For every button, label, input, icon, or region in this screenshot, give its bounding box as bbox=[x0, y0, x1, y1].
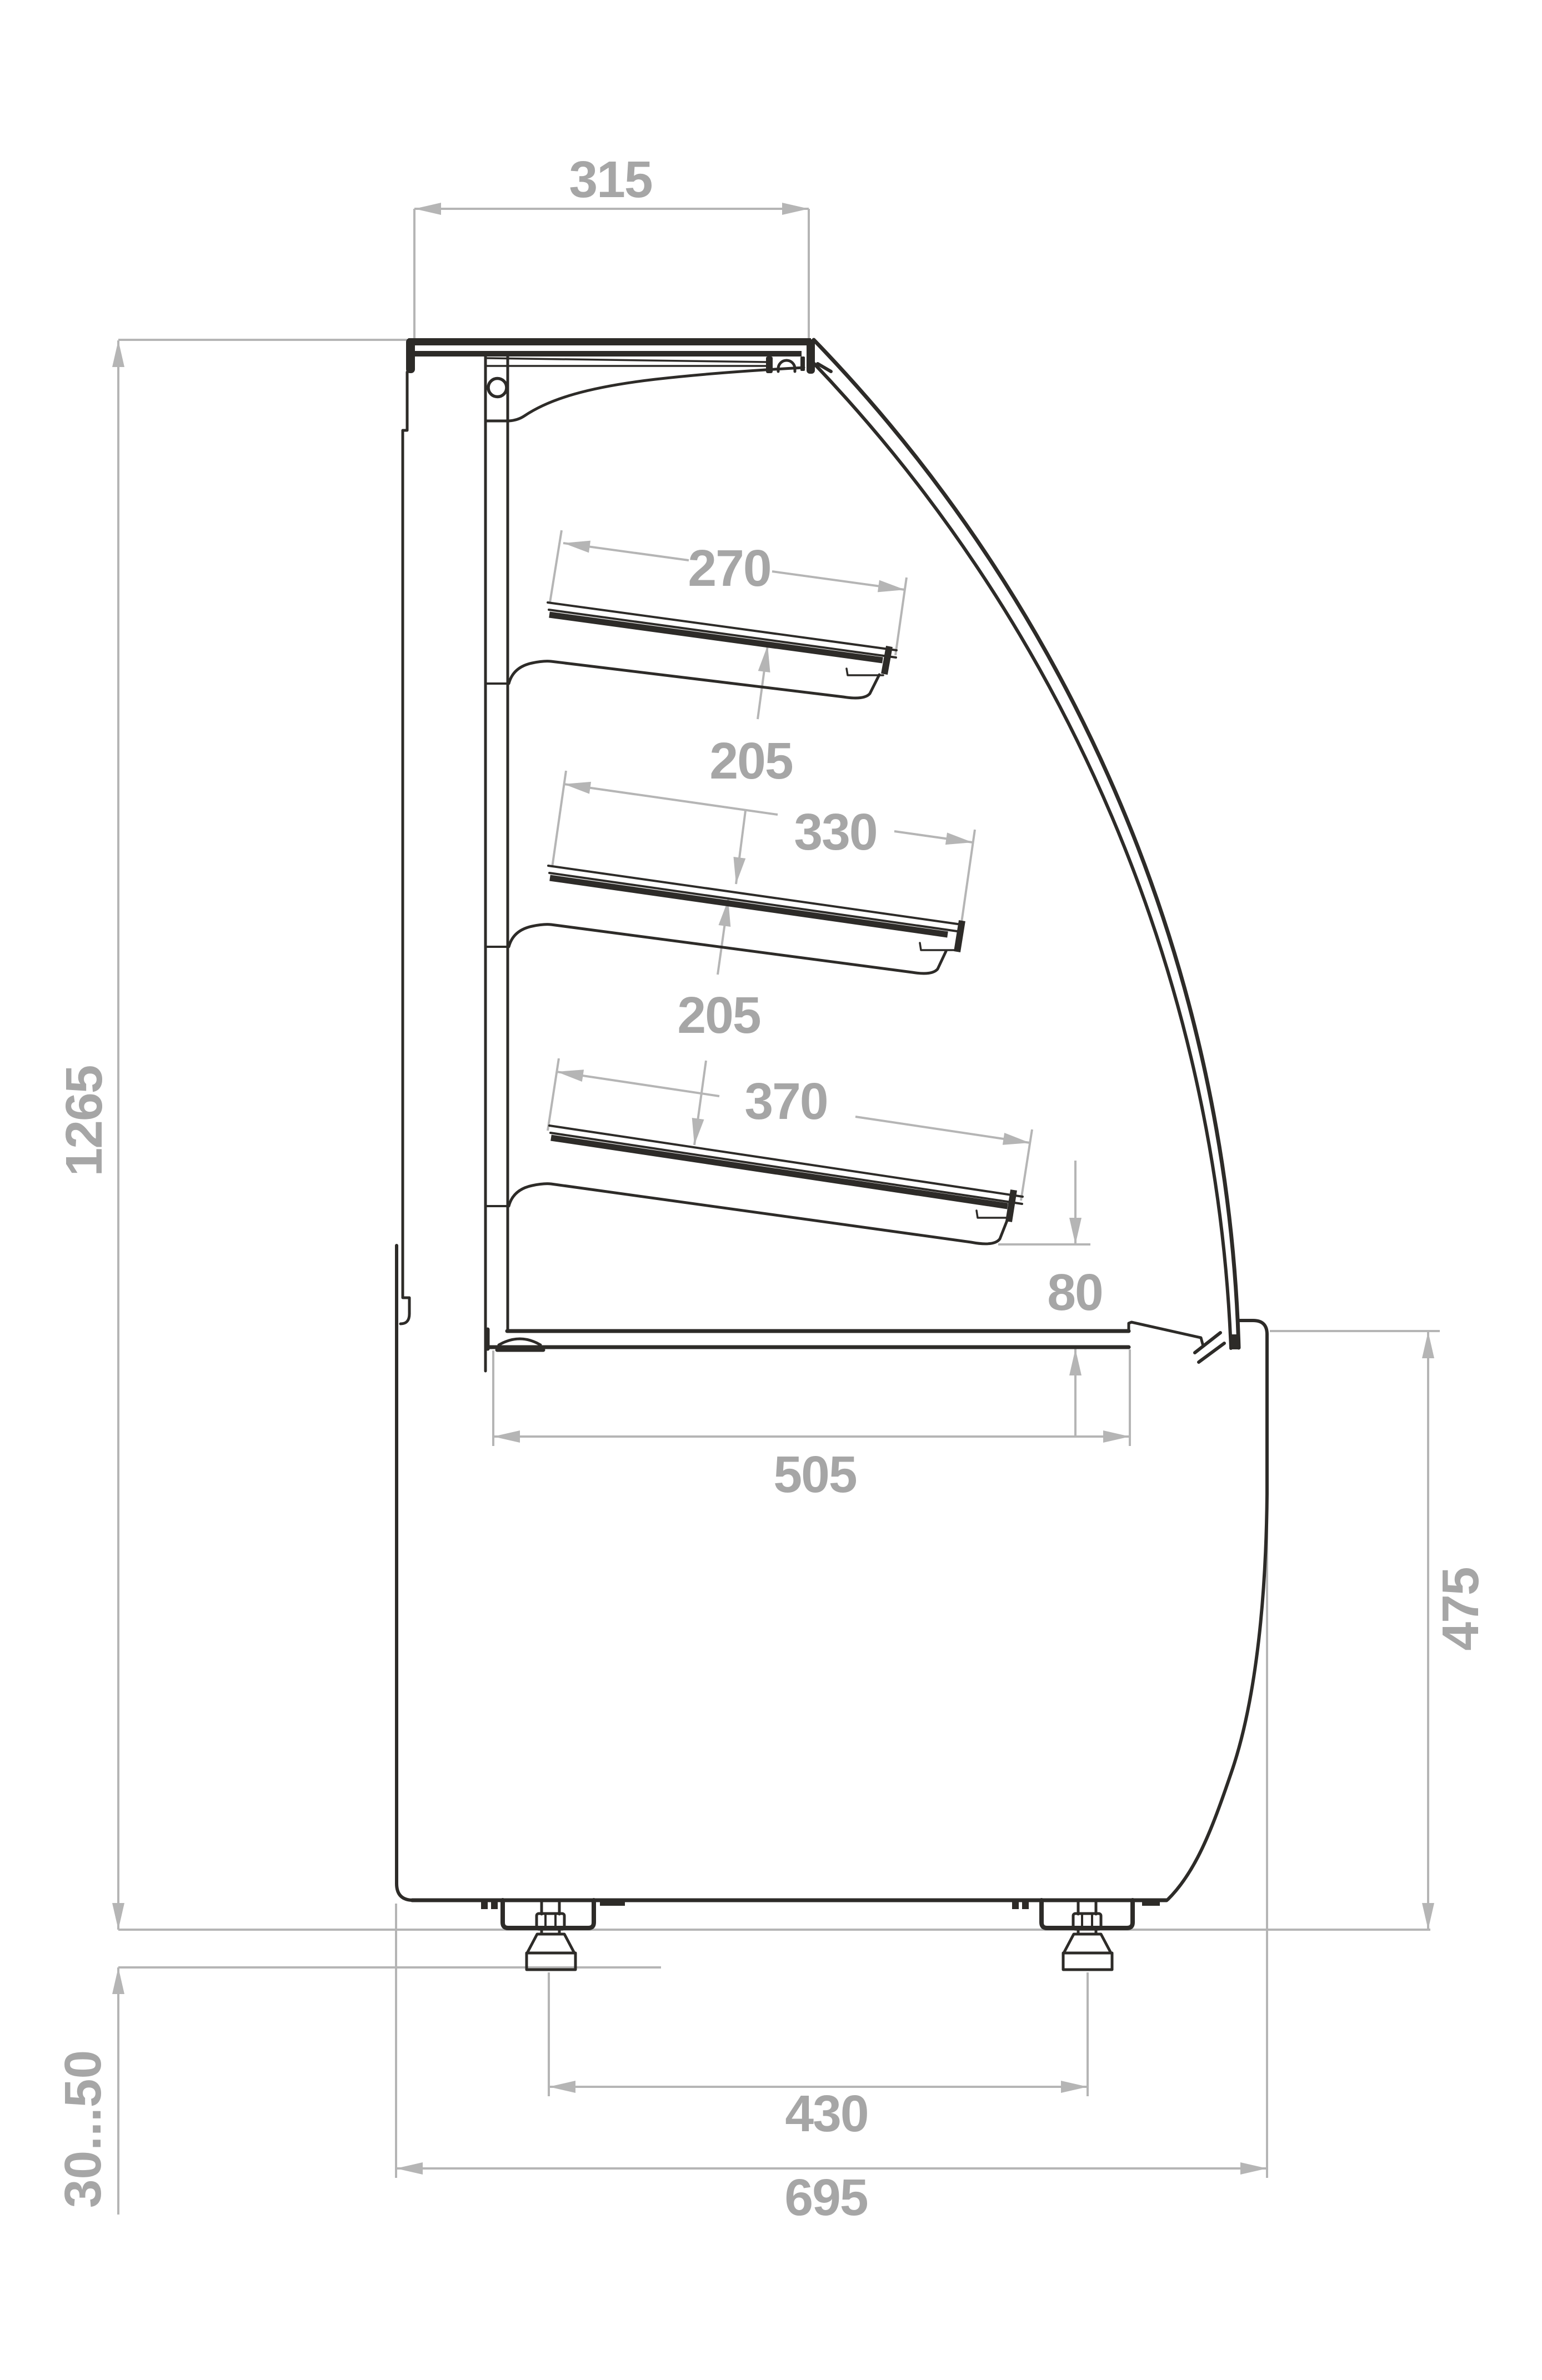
svg-text:315: 315 bbox=[569, 150, 652, 208]
svg-text:475: 475 bbox=[1431, 1568, 1489, 1650]
svg-text:370: 370 bbox=[744, 1072, 827, 1130]
svg-text:270: 270 bbox=[688, 539, 770, 597]
svg-text:505: 505 bbox=[773, 1445, 856, 1503]
svg-text:205: 205 bbox=[677, 986, 760, 1044]
svg-text:430: 430 bbox=[785, 2085, 868, 2142]
svg-text:80: 80 bbox=[1047, 1263, 1102, 1321]
svg-text:695: 695 bbox=[784, 2168, 867, 2226]
svg-text:30...50: 30...50 bbox=[54, 2050, 112, 2208]
svg-text:330: 330 bbox=[794, 803, 877, 861]
svg-text:1265: 1265 bbox=[55, 1066, 113, 1176]
svg-text:205: 205 bbox=[709, 732, 792, 790]
